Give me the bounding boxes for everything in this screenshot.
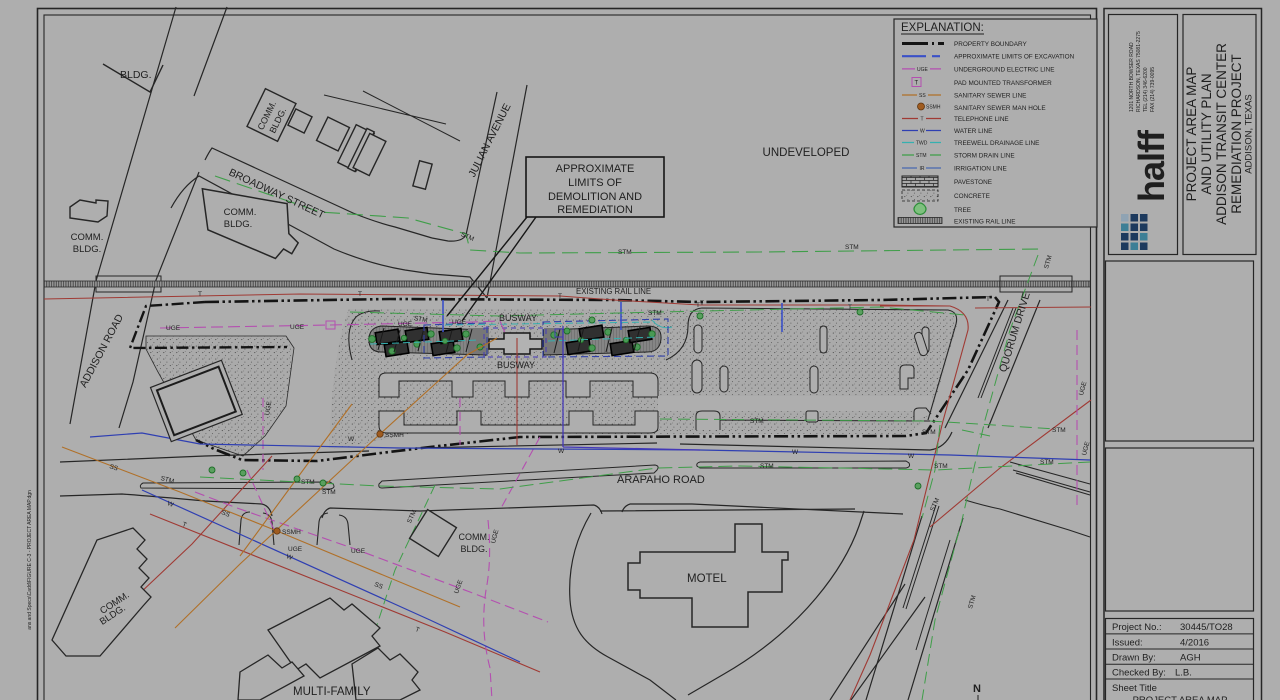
svg-text:MOTEL: MOTEL	[687, 573, 727, 585]
svg-text:T: T	[915, 81, 919, 87]
svg-text:PROPERTY BOUNDARY: PROPERTY BOUNDARY	[954, 41, 1028, 48]
svg-text:PAVESTONE: PAVESTONE	[954, 179, 992, 186]
svg-text:CONCRETE: CONCRETE	[954, 193, 990, 200]
svg-text:RICHARDSON, TEXAS 75081-2275: RICHARDSON, TEXAS 75081-2275	[1136, 31, 1142, 112]
svg-text:COMM.: COMM.	[71, 232, 104, 243]
svg-text:SS: SS	[919, 93, 926, 99]
svg-text:SANITARY SEWER LINE: SANITARY SEWER LINE	[954, 93, 1026, 100]
svg-text:BUSWAY: BUSWAY	[499, 313, 537, 323]
svg-text:W: W	[920, 129, 925, 135]
svg-text:STM: STM	[916, 153, 927, 159]
svg-text:UGE: UGE	[917, 67, 929, 73]
svg-text:TREE: TREE	[954, 207, 971, 214]
svg-text:STM: STM	[301, 479, 315, 486]
svg-text:Issued:: Issued:	[1112, 638, 1143, 649]
svg-text:STM: STM	[760, 463, 774, 470]
svg-text:T: T	[921, 117, 924, 123]
svg-text:BLDG.: BLDG.	[460, 544, 487, 554]
svg-text:30445/TO28: 30445/TO28	[1180, 622, 1233, 633]
svg-text:SANITARY SEWER MAN HOLE: SANITARY SEWER MAN HOLE	[954, 105, 1046, 112]
svg-text:W: W	[348, 436, 355, 443]
svg-text:STM: STM	[322, 489, 336, 496]
svg-text:APPROXIMATE LIMITS OF EXCAVATI: APPROXIMATE LIMITS OF EXCAVATION	[954, 54, 1075, 61]
svg-text:UGE: UGE	[452, 319, 467, 326]
svg-text:MULTI-FAMILY: MULTI-FAMILY	[293, 686, 371, 698]
svg-text:UGE: UGE	[166, 325, 181, 332]
svg-text:LIMITS OF: LIMITS OF	[568, 177, 622, 189]
svg-text:EXISTING RAIL LINE: EXISTING RAIL LINE	[954, 219, 1016, 226]
svg-text:PAD MOUNTED TRANSFORMER: PAD MOUNTED TRANSFORMER	[954, 80, 1052, 87]
svg-text:ADDISON, TEXAS: ADDISON, TEXAS	[1244, 94, 1255, 174]
svg-text:L.B.: L.B.	[1175, 668, 1192, 679]
svg-text:UGE: UGE	[351, 548, 366, 555]
svg-text:PROJECT AREA MAP: PROJECT AREA MAP	[1133, 695, 1228, 700]
svg-text:T: T	[848, 304, 852, 311]
svg-text:4/2016: 4/2016	[1180, 638, 1209, 649]
svg-text:ARAPAHO ROAD: ARAPAHO ROAD	[617, 474, 705, 486]
svg-text:T: T	[358, 291, 362, 298]
svg-text:FAX (214) 739-0095: FAX (214) 739-0095	[1150, 67, 1156, 112]
svg-text:UNDERGROUND ELECTRIC LINE: UNDERGROUND ELECTRIC LINE	[954, 66, 1055, 73]
svg-text:PROJECT AREA MAP: PROJECT AREA MAP	[1184, 67, 1199, 202]
svg-text:UGE: UGE	[288, 546, 303, 553]
svg-text:UGE: UGE	[398, 321, 413, 328]
svg-text:COMM.: COMM.	[459, 532, 490, 542]
svg-text:REMEDIATION: REMEDIATION	[557, 204, 633, 216]
svg-text:AGH: AGH	[1180, 653, 1201, 664]
svg-text:DEMOLITION AND: DEMOLITION AND	[548, 191, 642, 203]
svg-text:BLDG.: BLDG.	[224, 219, 253, 230]
svg-text:UGE: UGE	[290, 324, 305, 331]
svg-text:1201 NORTH BOWSER ROAD: 1201 NORTH BOWSER ROAD	[1129, 42, 1135, 112]
svg-text:ans and Specs\Cadd\FIGURE C-3: ans and Specs\Cadd\FIGURE C-3 - PROJECT …	[27, 490, 33, 630]
svg-text:STM: STM	[845, 244, 859, 251]
svg-text:BLDG.: BLDG.	[73, 244, 102, 255]
svg-text:halff: halff	[1131, 129, 1172, 202]
svg-text:STM: STM	[1040, 459, 1054, 466]
svg-text:REMEDIATION PROJECT: REMEDIATION PROJECT	[1229, 54, 1244, 214]
svg-text:N: N	[973, 683, 981, 695]
svg-text:STM: STM	[922, 429, 936, 436]
svg-text:EXPLANATION:: EXPLANATION:	[901, 22, 984, 34]
svg-text:BUSWAY: BUSWAY	[497, 360, 535, 370]
svg-text:T: T	[986, 296, 990, 303]
svg-text:SSMH: SSMH	[282, 529, 301, 536]
svg-text:Sheet Title: Sheet Title	[1112, 683, 1157, 694]
svg-text:T: T	[558, 293, 562, 300]
svg-text:W: W	[792, 449, 799, 456]
svg-text:SSMH: SSMH	[385, 432, 404, 439]
svg-text:STM: STM	[618, 249, 632, 256]
svg-text:WATER LINE: WATER LINE	[954, 128, 992, 135]
svg-text:AND UTILITY PLAN: AND UTILITY PLAN	[1199, 73, 1214, 194]
svg-text:Project No.:: Project No.:	[1112, 622, 1162, 633]
svg-text:STM: STM	[934, 463, 948, 470]
svg-text:T: T	[198, 291, 202, 298]
svg-text:TELEPHONE LINE: TELEPHONE LINE	[954, 116, 1009, 123]
svg-text:SSMH: SSMH	[926, 105, 941, 111]
svg-text:APPROXIMATE: APPROXIMATE	[556, 163, 635, 175]
svg-text:EXISTING RAIL LINE: EXISTING RAIL LINE	[576, 287, 651, 296]
svg-text:TEL (214) 346-6200: TEL (214) 346-6200	[1143, 67, 1149, 112]
svg-text:IRRIGATION LINE: IRRIGATION LINE	[954, 166, 1007, 173]
svg-text:Drawn By:: Drawn By:	[1112, 653, 1156, 664]
svg-text:STM: STM	[648, 310, 662, 317]
svg-text:T: T	[700, 300, 704, 307]
svg-text:STM: STM	[1052, 427, 1066, 434]
svg-text:Checked By:: Checked By:	[1112, 668, 1166, 679]
svg-text:BLDG.: BLDG.	[120, 69, 152, 81]
svg-text:W: W	[908, 453, 915, 460]
svg-text:ADDISON TRANSIT CENTER: ADDISON TRANSIT CENTER	[1214, 43, 1229, 225]
svg-text:STM: STM	[750, 418, 764, 425]
svg-text:TREEWELL DRAINAGE LINE: TREEWELL DRAINAGE LINE	[954, 140, 1039, 147]
svg-text:W: W	[558, 448, 565, 455]
svg-text:IR: IR	[920, 166, 925, 172]
svg-text:STORM DRAIN LINE: STORM DRAIN LINE	[954, 153, 1015, 160]
svg-text:UNDEVELOPED: UNDEVELOPED	[763, 147, 850, 159]
svg-text:COMM.: COMM.	[224, 207, 257, 218]
svg-text:TWD: TWD	[916, 141, 928, 147]
